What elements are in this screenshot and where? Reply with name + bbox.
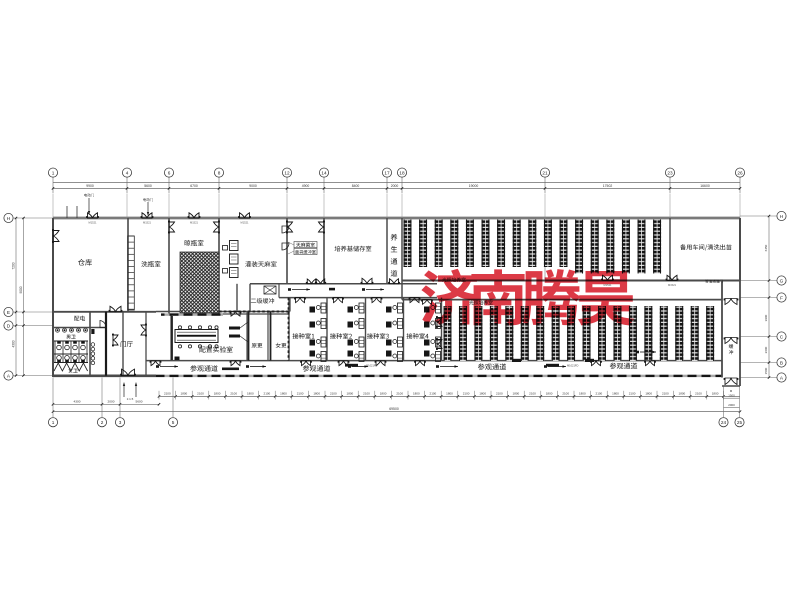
svg-text:1800: 1800 [712,392,719,396]
svg-text:1800: 1800 [479,392,486,396]
svg-text:5600: 5600 [144,184,152,188]
svg-text:1800: 1800 [446,392,453,396]
svg-text:2100: 2100 [297,392,304,396]
svg-text:2100: 2100 [363,392,370,396]
svg-text:2100: 2100 [562,392,569,396]
svg-text:9900: 9900 [86,184,94,188]
svg-text:1800: 1800 [313,392,320,396]
svg-text:9000: 9000 [249,184,257,188]
svg-text:1: 1 [52,170,55,175]
svg-text:1800: 1800 [247,392,254,396]
svg-text:2100: 2100 [164,392,171,396]
svg-text:5: 5 [172,420,175,425]
svg-text:17: 17 [384,170,390,175]
svg-text:M1521: M1521 [89,221,97,225]
svg-text:2100: 2100 [264,392,271,396]
svg-text:1800: 1800 [612,392,619,396]
svg-text:3: 3 [119,420,122,425]
svg-text:2: 2 [101,420,104,425]
svg-text:M1521: M1521 [668,283,676,287]
svg-text:23: 23 [667,170,673,175]
svg-text:2600: 2600 [764,346,768,353]
svg-text:2100: 2100 [396,392,403,396]
svg-text:2000: 2000 [728,403,735,407]
svg-text:8: 8 [218,170,221,175]
svg-text:2100: 2100 [230,392,237,396]
svg-text:M1021FD: M1021FD [567,364,579,368]
svg-text:4: 4 [126,170,129,175]
svg-text:6: 6 [168,170,171,175]
svg-text:18: 18 [399,170,405,175]
svg-text:2100: 2100 [596,392,603,396]
svg-text:3900: 3900 [764,314,768,321]
svg-text:6450: 6450 [764,244,768,251]
svg-text:5600: 5600 [136,400,143,404]
svg-text:14: 14 [321,170,327,175]
svg-text:1800: 1800 [380,392,387,396]
svg-text:2100: 2100 [629,392,636,396]
svg-text:2100: 2100 [695,392,702,396]
svg-text:2100: 2100 [529,392,536,396]
svg-text:G: G [780,278,784,283]
svg-text:1800: 1800 [546,392,553,396]
svg-text:H: H [7,216,10,221]
svg-text:2000: 2000 [391,184,399,188]
svg-text:25: 25 [737,420,743,425]
svg-text:4300: 4300 [74,400,81,404]
svg-text:2000: 2000 [108,400,115,404]
svg-text:1:1.5: 1:1.5 [127,397,134,401]
svg-text:2100: 2100 [330,392,337,396]
svg-text:E: E [7,310,10,315]
svg-text:4900: 4900 [302,184,310,188]
svg-text:H: H [780,214,783,219]
svg-text:2100: 2100 [496,392,503,396]
svg-text:19000: 19000 [469,184,479,188]
svg-text:24: 24 [721,420,727,425]
svg-text:1500: 1500 [728,394,735,398]
svg-text:1800: 1800 [513,392,520,396]
svg-text:M1521: M1521 [241,221,249,225]
svg-text:1800: 1800 [645,392,652,396]
svg-text:16600: 16600 [700,184,710,188]
svg-text:12: 12 [284,170,290,175]
svg-text:F: F [780,295,783,300]
svg-text:M1521: M1521 [190,221,198,225]
svg-text:6700: 6700 [190,184,198,188]
svg-text:1800: 1800 [679,392,686,396]
svg-text:17502: 17502 [603,184,613,188]
svg-text:69500: 69500 [389,407,399,411]
svg-text:1800: 1800 [181,392,188,396]
svg-text:2100: 2100 [463,392,470,396]
svg-text:1800: 1800 [347,392,354,396]
svg-text:M1521: M1521 [143,221,151,225]
svg-text:B: B [780,360,783,365]
svg-text:21: 21 [542,170,548,175]
svg-text:1800: 1800 [579,392,586,396]
svg-text:26: 26 [737,170,743,175]
svg-text:1: 1 [52,420,55,425]
svg-text:7200: 7200 [12,262,16,269]
svg-text:4300: 4300 [12,340,16,347]
svg-text:2100: 2100 [662,392,669,396]
svg-text:1500: 1500 [764,367,768,374]
svg-text:1800: 1800 [413,392,420,396]
svg-text:9000: 9000 [19,286,23,293]
svg-text:8400: 8400 [352,184,360,188]
svg-text:2100: 2100 [197,392,204,396]
svg-text:1800: 1800 [214,392,221,396]
svg-text:2100: 2100 [430,392,437,396]
svg-text:1800: 1800 [280,392,287,396]
